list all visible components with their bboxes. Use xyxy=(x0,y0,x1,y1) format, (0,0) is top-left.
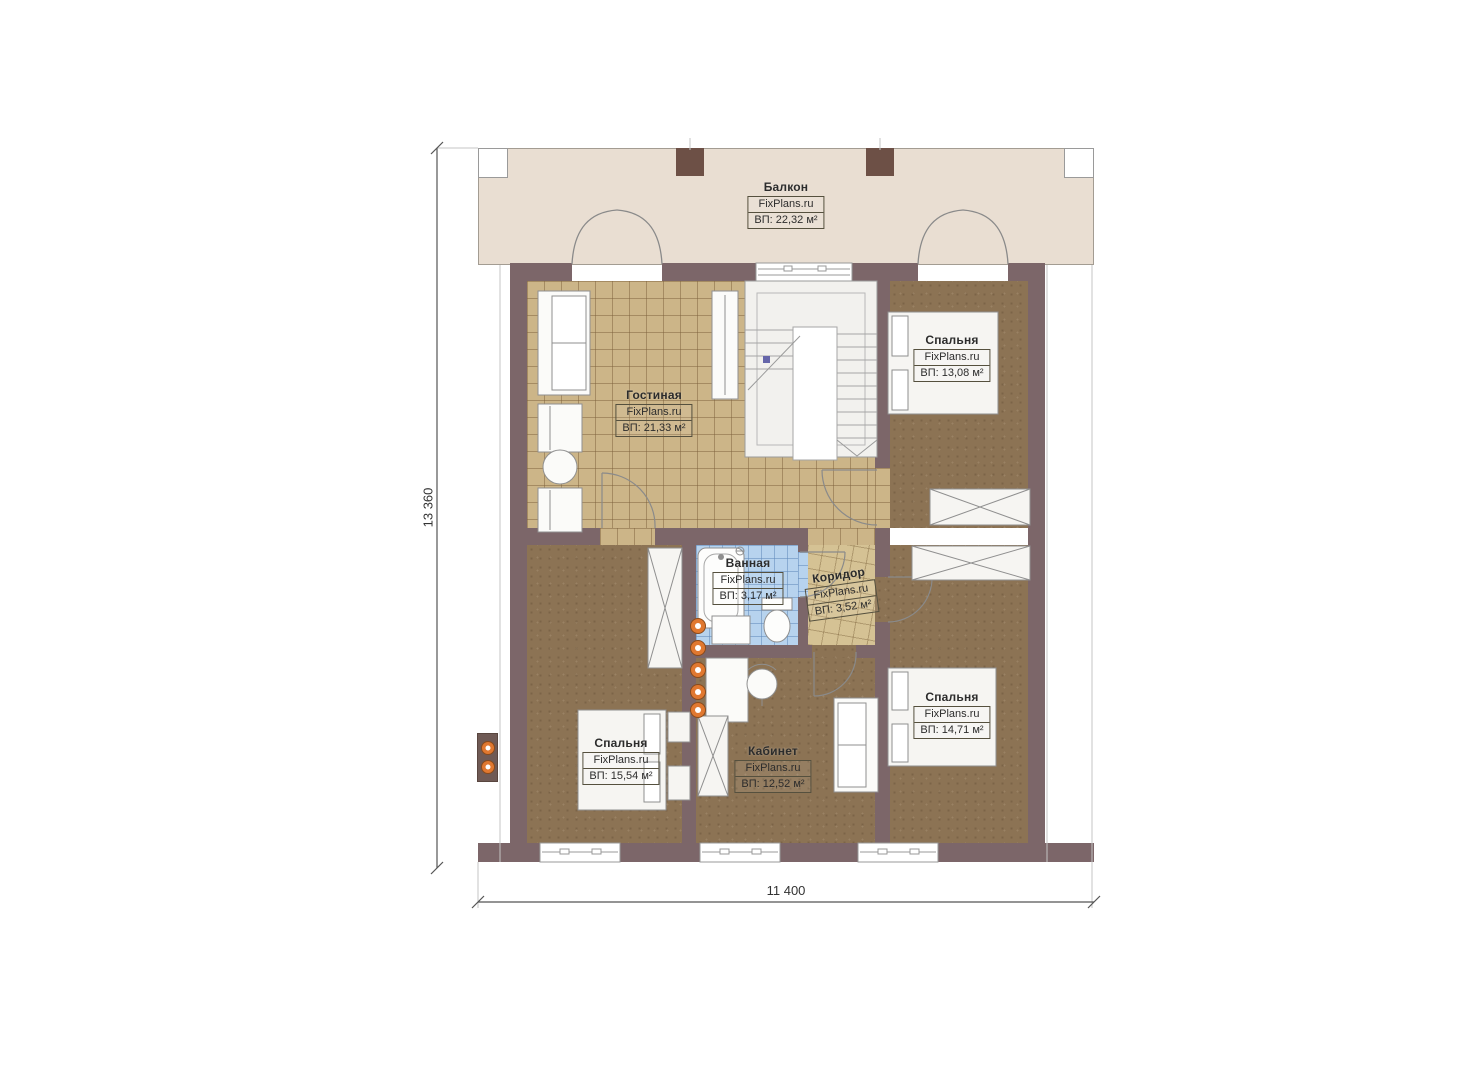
wall xyxy=(856,645,875,658)
door-threshold xyxy=(812,645,856,658)
brand-label: FixPlans.ru xyxy=(914,350,989,365)
room-name: Ванная xyxy=(712,556,783,570)
brand-label: FixPlans.ru xyxy=(616,405,691,420)
wall xyxy=(875,281,890,468)
wall xyxy=(852,263,918,281)
exterior-light-fixture xyxy=(477,733,498,782)
door-threshold xyxy=(875,468,890,528)
room-name: Гостиная xyxy=(615,388,692,402)
room-name: Балкон xyxy=(747,180,824,194)
room-floor-living xyxy=(527,281,875,528)
brand-label: FixPlans.ru xyxy=(735,761,810,776)
area-label: ВП: 13,08 м² xyxy=(914,365,989,381)
area-label: ВП: 3,17 м² xyxy=(713,588,782,604)
room-floor-bedroom-sw xyxy=(527,545,682,843)
room-label-balcony: Балкон FixPlans.ru ВП: 22,32 м² xyxy=(747,180,824,229)
room-name: Спальня xyxy=(913,333,990,347)
door-threshold xyxy=(600,528,655,545)
wall xyxy=(662,263,756,281)
window xyxy=(540,843,620,862)
room-label-corridor: Коридор FixPlans.ru ВП: 3,52 м² xyxy=(802,563,879,621)
wall xyxy=(478,843,540,862)
wall xyxy=(1008,263,1028,281)
room-label-bedroom-ne: Спальня FixPlans.ru ВП: 13,08 м² xyxy=(913,333,990,382)
wall xyxy=(527,528,600,545)
room-label-office: Кабинет FixPlans.ru ВП: 12,52 м² xyxy=(734,744,811,793)
room-name: Спальня xyxy=(913,690,990,704)
wall xyxy=(938,843,1094,862)
window xyxy=(700,843,780,862)
wall xyxy=(875,528,890,577)
area-label: ВП: 15,54 м² xyxy=(583,768,658,784)
balcony-pillar xyxy=(866,148,894,176)
dimension-height: 13 360 xyxy=(420,488,435,528)
wall xyxy=(875,622,890,843)
room-label-bedroom-se: Спальня FixPlans.ru ВП: 14,71 м² xyxy=(913,690,990,739)
brand-label: FixPlans.ru xyxy=(914,707,989,722)
wall xyxy=(682,545,696,843)
floor-plan: Балкон FixPlans.ru ВП: 22,32 м² Гостиная… xyxy=(0,0,1474,1080)
brand-label: FixPlans.ru xyxy=(583,753,658,768)
area-label: ВП: 22,32 м² xyxy=(748,212,823,228)
dimension-width: 11 400 xyxy=(767,883,806,898)
area-label: ВП: 14,71 м² xyxy=(914,722,989,738)
area-label: ВП: 21,33 м² xyxy=(616,420,691,436)
wall xyxy=(798,528,808,552)
room-label-living: Гостиная FixPlans.ru ВП: 21,33 м² xyxy=(615,388,692,437)
window xyxy=(858,843,938,862)
balcony-pillar xyxy=(676,148,704,176)
brand-label: FixPlans.ru xyxy=(713,573,782,588)
corridor-opening xyxy=(806,528,875,545)
wall xyxy=(682,645,812,658)
wall xyxy=(510,263,527,862)
brand-label: FixPlans.ru xyxy=(748,197,823,212)
wall xyxy=(1028,263,1045,862)
wall xyxy=(620,843,700,862)
wall xyxy=(655,528,806,545)
room-name: Спальня xyxy=(582,736,659,750)
area-label: ВП: 12,52 м² xyxy=(735,776,810,792)
window xyxy=(756,263,852,281)
wall xyxy=(527,263,572,281)
balcony-corner-block xyxy=(478,148,508,178)
room-name: Кабинет xyxy=(734,744,811,758)
balcony-corner-block xyxy=(1064,148,1094,178)
room-label-bedroom-sw: Спальня FixPlans.ru ВП: 15,54 м² xyxy=(582,736,659,785)
wall xyxy=(780,843,858,862)
room-label-bathroom: Ванная FixPlans.ru ВП: 3,17 м² xyxy=(712,556,783,605)
room-floor-bedroom-ne xyxy=(890,281,1028,528)
